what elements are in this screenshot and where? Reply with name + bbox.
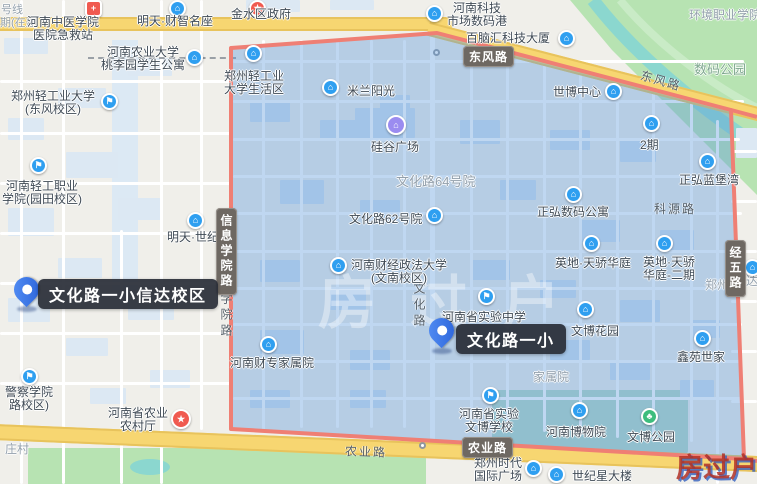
building-icon[interactable]: ⌂ (426, 5, 443, 22)
street (731, 400, 757, 403)
poi-label-line: 农村厅 (107, 420, 169, 433)
building-icon[interactable]: ⌂ (699, 153, 716, 170)
building-block (680, 380, 714, 398)
poi-label[interactable]: 鑫苑世家 (677, 351, 725, 364)
poi-label-line: 路校区) (0, 399, 58, 412)
poi-label[interactable]: 明天·世纪 (167, 231, 219, 244)
street (262, 40, 265, 430)
poi-label-line: 市场数码港 (446, 15, 508, 28)
poi-label-line: 国际广场 (471, 470, 525, 483)
poi-label-line: 桃李园学生公寓 (101, 59, 185, 72)
building-block (330, 0, 374, 10)
poi-label[interactable]: 正弘蓝堡湾 (679, 174, 739, 187)
street (731, 150, 757, 153)
graduation-cap-icon[interactable]: ⚑ (21, 368, 38, 385)
star-icon[interactable]: ★ (171, 409, 191, 429)
street (370, 40, 373, 428)
poi-label[interactable]: 郑州轻工业大学(东风校区) (10, 90, 96, 116)
building-block (66, 152, 118, 178)
road-name: 农业路 (345, 442, 388, 460)
building-icon[interactable]: ⌂ (330, 257, 347, 274)
poi-label[interactable]: 河南轻工职业学院(园田校区) (0, 180, 84, 206)
building-icon[interactable]: ⌂ (656, 235, 673, 252)
road-badge: 农业路 (462, 437, 513, 458)
poi-label[interactable]: 英地·天骄华庭-二期 (640, 256, 698, 282)
pin-shadow (432, 348, 452, 354)
poi-label-line: 河南财专家属院 (230, 357, 314, 370)
road-badge: 东风路 (463, 46, 514, 67)
poi-label-line: 文博学校 (458, 421, 520, 434)
poi-label-line: 医院急救站 (27, 29, 99, 42)
building-icon[interactable]: ⌂ (565, 186, 582, 203)
park-icon[interactable]: ♣ (641, 408, 658, 425)
building-icon[interactable]: ⌂ (577, 301, 594, 318)
street (0, 132, 232, 135)
building-icon[interactable]: ⌂ (583, 235, 600, 252)
poi-label[interactable]: 河南财专家属院 (230, 357, 314, 370)
poi-label-line: 明天·世纪 (167, 231, 219, 244)
building-icon[interactable]: ⌂ (694, 330, 711, 347)
building-block (118, 198, 162, 220)
poi-label-line: 金水区政府 (231, 8, 291, 21)
poi-label-line: 鑫苑世家 (677, 351, 725, 364)
building-icon[interactable]: ⌂ (558, 30, 575, 47)
area-label: 庄村 (5, 440, 29, 457)
graduation-cap-icon[interactable]: ⚑ (101, 93, 118, 110)
poi-label-line: 米兰阳光 (347, 85, 395, 98)
building-block (470, 260, 510, 280)
building-icon[interactable]: ⌂ (187, 212, 204, 229)
poi-label[interactable]: 文化路62号院 (349, 213, 422, 226)
building-block (250, 100, 290, 122)
building-icon[interactable]: ⌂ (548, 466, 565, 483)
street (731, 200, 757, 203)
poi-label[interactable]: 郑州轻工业大学生活区 (223, 70, 285, 96)
building-icon[interactable]: ⌂ (245, 45, 262, 62)
graduation-cap-icon[interactable]: ⚑ (30, 157, 47, 174)
poi-label[interactable]: 河南省实验文博学校 (458, 408, 520, 434)
street (62, 0, 65, 484)
building-block (355, 108, 415, 138)
building-icon[interactable]: ⌂ (426, 207, 443, 224)
poi-label-line: 世纪星大楼 (572, 470, 632, 483)
poi-label[interactable]: 文博花园 (571, 325, 619, 338)
street (403, 40, 406, 428)
road-badge: 信息学院路 (216, 208, 237, 295)
street (0, 332, 232, 335)
road-name: 科源路 (654, 200, 696, 217)
search-result-label[interactable]: 文化路一小信达校区 (38, 279, 218, 309)
poi-label[interactable]: 河南省农业农村厅 (107, 407, 169, 433)
poi-label[interactable]: 米兰阳光 (347, 85, 395, 98)
road-badge: 经五路 (725, 240, 746, 297)
poi-label-line: 文博公园 (627, 431, 675, 444)
poi-label[interactable]: 河南农业大学桃李园学生公寓 (101, 46, 185, 72)
street (430, 36, 435, 448)
area-label: 环境职业学院 (689, 6, 757, 23)
building-icon[interactable]: ⌂ (643, 115, 660, 132)
poi-label-line: 文博花园 (571, 325, 619, 338)
poi-label-line: 大学生活区 (223, 83, 285, 96)
street (731, 350, 757, 353)
poi-label-line: 百脑汇科技大厦 (466, 32, 550, 45)
flag-icon[interactable]: ⚑ (478, 288, 495, 305)
building-block (260, 260, 300, 282)
poi-label[interactable]: 世纪星大楼 (572, 470, 632, 483)
poi-label-line: 河南博物院 (546, 426, 606, 439)
street (506, 50, 509, 430)
pin-shadow (17, 306, 37, 312)
building-block (66, 338, 108, 356)
poi-label-line: 河南省实验中学 (442, 311, 526, 324)
poi-label-line: 正弘数码公寓 (537, 206, 609, 219)
poi-label[interactable]: 正弘数码公寓 (537, 206, 609, 219)
shopping-bag-icon[interactable]: ⌂ (386, 115, 406, 135)
poi-label[interactable]: 河南科技市场数码港 (446, 2, 508, 28)
building-icon[interactable]: ⌂ (525, 460, 542, 477)
area-label: 数码公园 (694, 59, 746, 78)
poi-label[interactable]: 硅谷广场 (371, 141, 419, 154)
poi-label[interactable]: 河南省实验中学 (442, 311, 526, 324)
building-block (150, 370, 190, 388)
area-label: 文化路64号院 (396, 171, 475, 190)
building-block (736, 128, 757, 158)
poi-label-line: 学院(园田校区) (0, 193, 84, 206)
poi-label[interactable]: 河南博物院 (546, 426, 606, 439)
poi-label[interactable]: 明天·财智名座 (137, 15, 213, 28)
poi-label-line: 正弘蓝堡湾 (679, 174, 739, 187)
poi-label[interactable]: 文博公园 (627, 431, 675, 444)
map-viewport[interactable]: 文化路一小信达校区 文化路一小 房过户 房过户 +河南中医学院医院急救站⌂明天·… (0, 0, 757, 484)
station-dot (419, 442, 426, 449)
road-name: 文化路 (411, 282, 428, 330)
poi-label[interactable]: 世博中心 (553, 86, 601, 99)
street (731, 300, 757, 303)
poi-label-line: 明天·财智名座 (137, 15, 213, 28)
poi-label[interactable]: 郑州时代国际广场 (471, 457, 525, 483)
area-label: 家属院 (533, 368, 569, 385)
poi-label-line: 英地·天骄华庭 (555, 257, 631, 270)
poi-label[interactable]: 2期 (640, 139, 659, 152)
poi-label[interactable]: 英地·天骄华庭 (555, 257, 631, 270)
poi-label-line: (东风校区) (10, 103, 96, 116)
street (233, 175, 740, 178)
building-icon[interactable]: ⌂ (186, 49, 203, 66)
poi-label[interactable]: 百脑汇科技大厦 (466, 32, 550, 45)
poi-label[interactable]: 警察学院路校区) (0, 386, 58, 412)
poi-label-line: (文南校区) (350, 272, 448, 285)
poi-label-line: 华庭-二期 (640, 269, 698, 282)
pond (130, 459, 170, 475)
poi-label-line: 2期 (640, 139, 659, 152)
street (233, 138, 740, 141)
museum-icon[interactable]: ⌂ (571, 402, 588, 419)
road-name: 学院路 (218, 292, 235, 340)
street (233, 100, 744, 103)
street (0, 80, 232, 83)
poi-label[interactable]: 河南中医学院医院急救站 (27, 16, 99, 42)
poi-label[interactable]: 河南财经政法大学(文南校区) (350, 259, 448, 285)
poi-label-line: 文化路62号院 (349, 213, 422, 226)
search-result-label[interactable]: 文化路一小 (456, 324, 566, 354)
building-icon[interactable]: ⌂ (605, 83, 622, 100)
street (336, 40, 339, 428)
poi-label[interactable]: 金水区政府 (231, 8, 291, 21)
station-dot (433, 49, 440, 56)
building-icon[interactable]: ⌂ (260, 336, 277, 353)
flag-icon[interactable]: ⚑ (482, 387, 499, 404)
building-block (8, 118, 44, 140)
poi-label-line: 硅谷广场 (371, 141, 419, 154)
poi-label-line: 世博中心 (553, 86, 601, 99)
building-icon[interactable]: ⌂ (322, 79, 339, 96)
street (120, 230, 123, 484)
